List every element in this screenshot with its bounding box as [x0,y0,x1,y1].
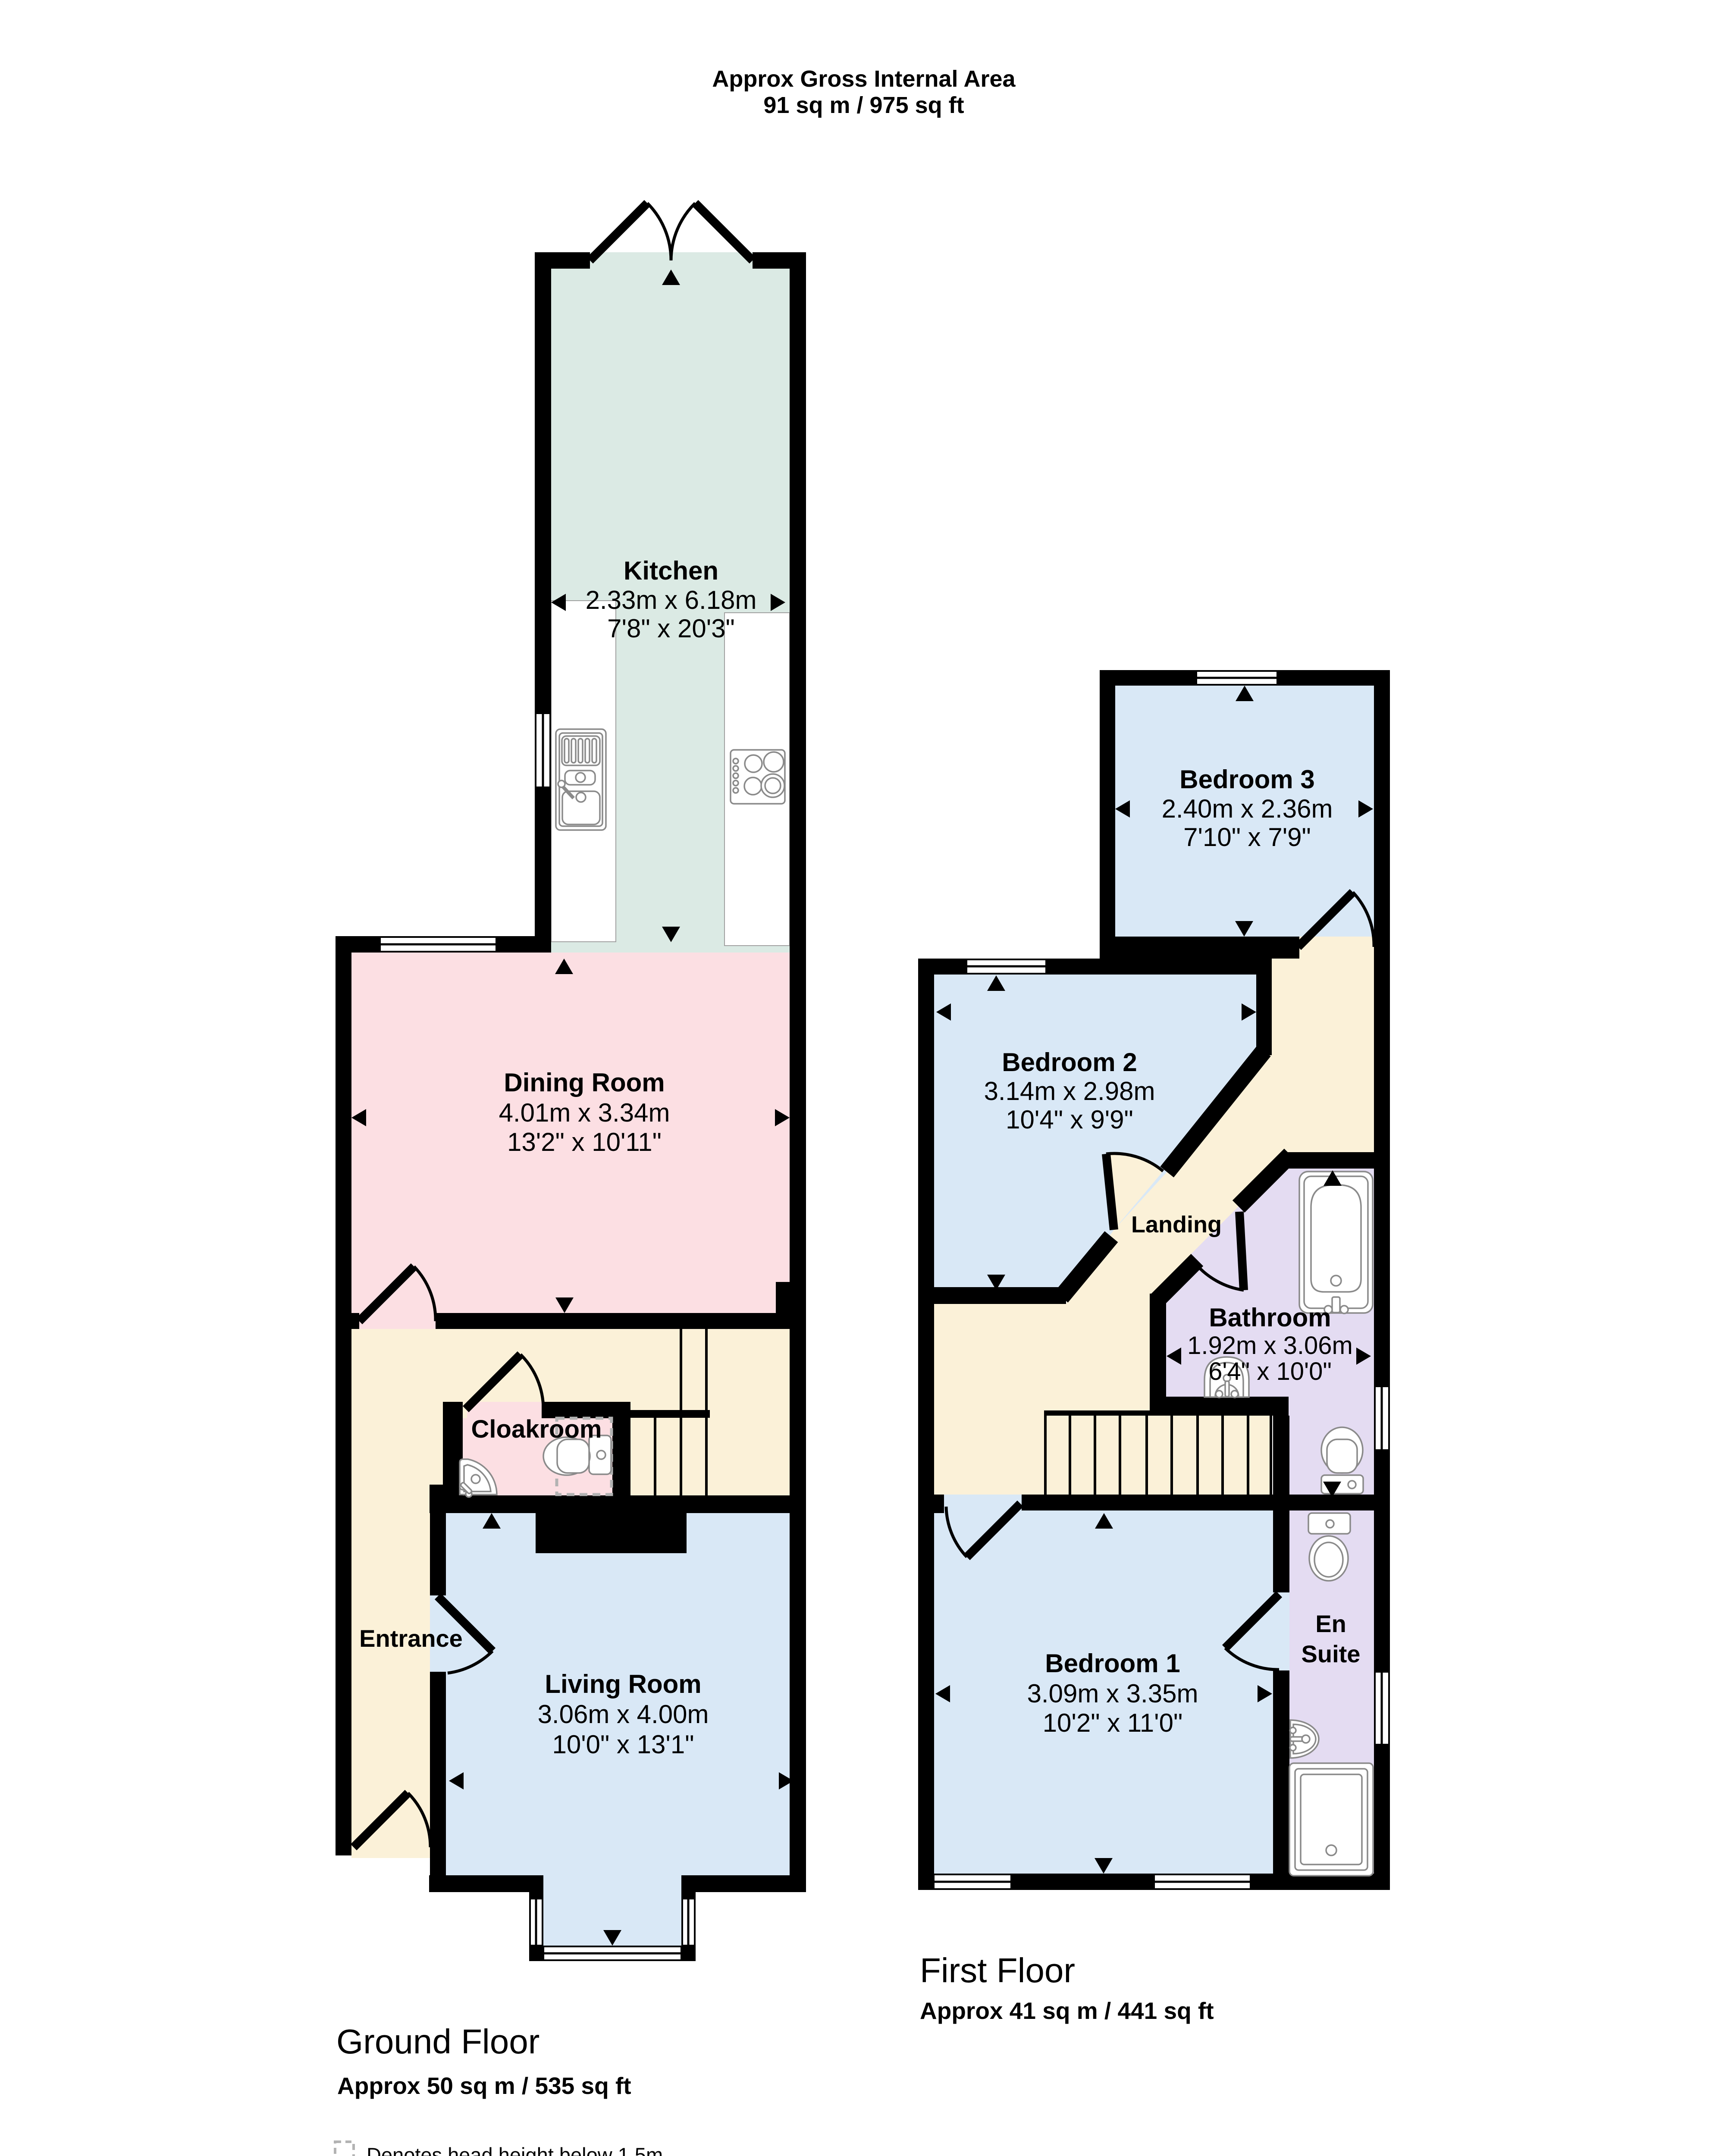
svg-text:2.40m x 2.36m: 2.40m x 2.36m [1162,794,1333,823]
svg-text:Ground Floor: Ground Floor [336,2022,539,2061]
svg-text:10'0" x 13'1": 10'0" x 13'1" [552,1730,694,1759]
svg-text:Approx 41 sq m / 441 sq ft: Approx 41 sq m / 441 sq ft [920,1997,1214,2024]
svg-text:7'8" x 20'3": 7'8" x 20'3" [607,614,735,643]
svg-text:Dining Room: Dining Room [504,1068,665,1097]
svg-text:First Floor: First Floor [920,1951,1075,1990]
svg-text:Landing: Landing [1131,1212,1222,1238]
svg-text:Approx Gross Internal Area: Approx Gross Internal Area [712,66,1016,92]
svg-text:3.14m x 2.98m: 3.14m x 2.98m [984,1077,1155,1106]
svg-text:7'10" x 7'9": 7'10" x 7'9" [1183,823,1311,852]
svg-text:Bathroom: Bathroom [1209,1303,1331,1332]
svg-text:4.01m x 3.34m: 4.01m x 3.34m [499,1098,670,1127]
svg-text:Bedroom 1: Bedroom 1 [1045,1649,1180,1678]
svg-text:Bedroom 2: Bedroom 2 [1002,1048,1137,1077]
svg-text:Suite: Suite [1302,1640,1361,1667]
svg-text:2.33m x 6.18m: 2.33m x 6.18m [586,586,757,614]
svg-text:Living Room: Living Room [545,1670,701,1698]
svg-text:10'4" x 9'9": 10'4" x 9'9" [1006,1105,1133,1134]
svg-text:Entrance: Entrance [359,1625,463,1652]
svg-text:3.09m x 3.35m: 3.09m x 3.35m [1027,1679,1198,1708]
svg-text:Denotes head height below 1.5m: Denotes head height below 1.5m [367,2143,663,2156]
svg-text:6'4" x 10'0": 6'4" x 10'0" [1208,1357,1332,1385]
svg-text:Bedroom 3: Bedroom 3 [1179,765,1314,794]
svg-text:3.06m x 4.00m: 3.06m x 4.00m [538,1700,709,1729]
svg-text:Approx 50 sq m / 535 sq ft: Approx 50 sq m / 535 sq ft [337,2072,631,2099]
svg-text:Cloakroom: Cloakroom [471,1415,602,1443]
svg-text:10'2" x 11'0": 10'2" x 11'0" [1043,1708,1183,1737]
svg-text:1.92m x 3.06m: 1.92m x 3.06m [1187,1332,1353,1360]
svg-text:En: En [1315,1610,1346,1637]
svg-text:Kitchen: Kitchen [624,556,718,585]
svg-text:13'2" x 10'11": 13'2" x 10'11" [507,1128,662,1156]
svg-text:91 sq m / 975 sq ft: 91 sq m / 975 sq ft [763,92,964,118]
